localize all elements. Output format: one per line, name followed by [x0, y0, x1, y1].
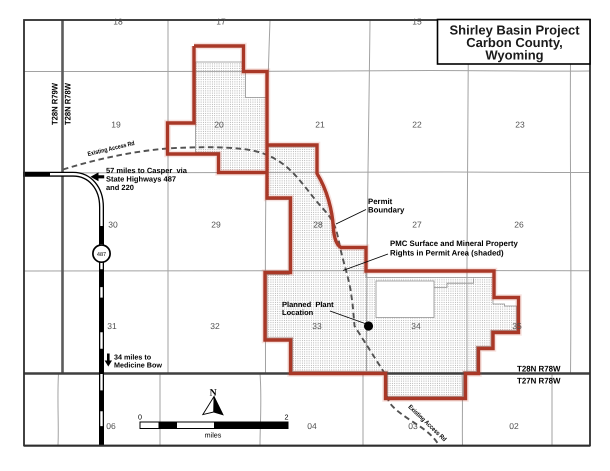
svg-text:487: 487: [97, 252, 106, 258]
svg-text:18: 18: [113, 17, 123, 27]
svg-text:Rights in Permit Area (shaded): Rights in Permit Area (shaded): [390, 248, 504, 257]
svg-text:and 220: and 220: [106, 183, 134, 192]
svg-text:32: 32: [210, 321, 220, 331]
svg-text:30: 30: [108, 220, 118, 230]
svg-text:T27N R78W: T27N R78W: [517, 377, 561, 386]
svg-text:26: 26: [514, 220, 524, 230]
svg-text:T28N R78W: T28N R78W: [64, 83, 73, 125]
svg-text:PMC Surface and Mineral Proper: PMC Surface and Mineral Property: [390, 239, 518, 248]
svg-text:15: 15: [412, 17, 422, 27]
svg-text:Medicine Bow: Medicine Bow: [114, 361, 162, 370]
svg-text:02: 02: [509, 421, 519, 431]
svg-text:20: 20: [214, 120, 224, 130]
svg-text:19: 19: [111, 120, 121, 130]
svg-text:Wyoming: Wyoming: [485, 48, 543, 63]
svg-text:22: 22: [412, 120, 422, 130]
svg-text:T28N R79W: T28N R79W: [51, 83, 60, 125]
svg-text:0: 0: [138, 413, 142, 422]
svg-text:34: 34: [411, 321, 421, 331]
svg-text:21: 21: [315, 120, 325, 130]
svg-text:06: 06: [106, 421, 116, 431]
svg-text:17: 17: [216, 17, 226, 27]
svg-text:Boundary: Boundary: [368, 205, 405, 214]
svg-text:2: 2: [285, 413, 289, 422]
svg-text:04: 04: [307, 421, 317, 431]
svg-text:33: 33: [312, 321, 322, 331]
svg-text:Location: Location: [282, 308, 314, 317]
svg-text:31: 31: [107, 321, 117, 331]
svg-text:28: 28: [313, 220, 323, 230]
svg-text:27: 27: [412, 220, 422, 230]
svg-text:35: 35: [512, 321, 522, 331]
svg-text:23: 23: [515, 120, 525, 130]
svg-text:T28N R78W: T28N R78W: [517, 365, 561, 374]
svg-text:29: 29: [211, 220, 221, 230]
svg-text:03: 03: [408, 421, 418, 431]
svg-text:miles: miles: [205, 431, 222, 440]
